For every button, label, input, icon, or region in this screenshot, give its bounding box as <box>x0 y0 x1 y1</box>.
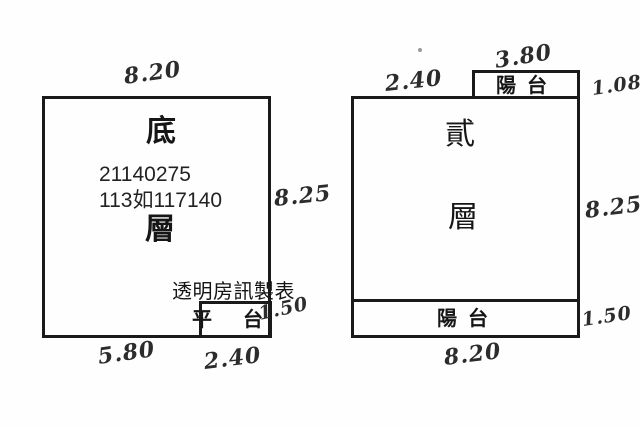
dim-top-balcony-width: 3.80 <box>493 41 553 72</box>
dim-top-balcony-height: 1.08 <box>591 73 640 99</box>
overlay-number-line2: 113如117140 <box>99 188 222 214</box>
overlay-number-line1: 21140275 <box>99 162 191 188</box>
ground-floor-label-top: 底 <box>146 117 176 147</box>
floor-plan-document: 底 21140275 113如117140 層 透明房訊製表 平台 8.20 8… <box>0 0 640 428</box>
ground-floor-label-bottom: 層 <box>145 215 175 245</box>
dim-ground-top-width: 8.20 <box>122 58 182 88</box>
dim-second-top-left-width: 2.40 <box>384 67 444 95</box>
top-balcony-label: 陽台 <box>496 75 558 95</box>
dim-ground-bottom-right-width: 2.40 <box>203 344 263 373</box>
dim-bottom-balcony-height: 1.50 <box>581 304 633 330</box>
dim-ground-bottom-left-width: 5.80 <box>96 338 156 368</box>
bottom-balcony-label: 陽台 <box>437 308 499 328</box>
bottom-balcony-divider <box>351 299 580 302</box>
dim-ground-right-height: 8.25 <box>273 182 333 210</box>
dim-second-right-height: 8.25 <box>584 193 640 222</box>
second-floor-label-bottom: 層 <box>448 203 478 233</box>
dim-second-bottom-width: 8.20 <box>443 340 503 369</box>
second-floor-label-top: 貳 <box>445 120 475 150</box>
scan-speck <box>418 48 422 52</box>
